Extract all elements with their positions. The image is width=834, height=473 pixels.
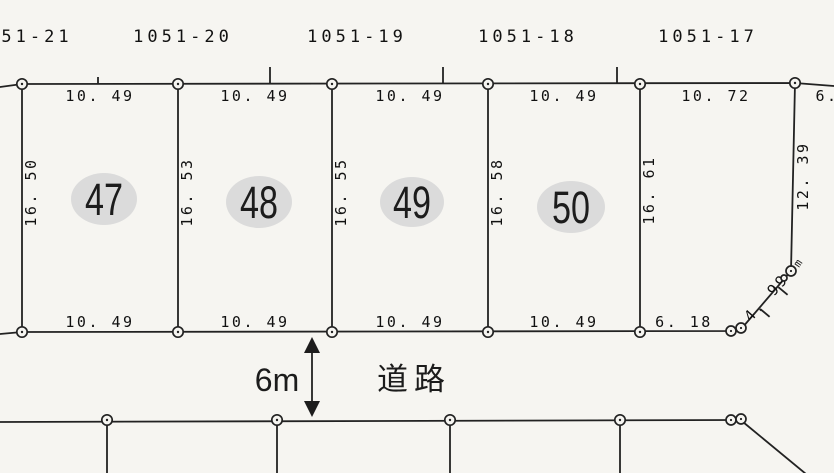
bottom-measurement-5: 6. 18 [655,313,713,331]
survey-point [736,414,746,424]
parcel-label-1051-20: 1051-20 [133,27,233,47]
survey-point [726,326,736,336]
road-south-diagonal [743,422,806,473]
depth-measurement-2: 16. 53 [178,157,196,226]
survey-point [17,79,27,89]
survey-point [781,275,787,281]
depth-measurement-3: 16. 55 [332,157,350,226]
parcel-label-1051-17: 1051-17 [658,27,758,47]
bottom-measurement-2: 10. 49 [220,313,289,331]
survey-point [483,79,493,89]
survey-point [483,327,493,337]
survey-point [615,415,625,425]
top-measurement-4: 10. 49 [529,87,598,105]
survey-point [790,78,800,88]
road-name-label: 道路 [377,362,451,397]
survey-point [272,415,282,425]
road-width-label: 6m [255,362,299,398]
plot-number-50: 50 [552,182,590,233]
plot-number-49: 49 [393,177,431,228]
survey-point [635,327,645,337]
survey-point [17,327,27,337]
parcel-label-1051-21: 51-21 [1,27,72,47]
survey-point [445,415,455,425]
survey-point [726,415,736,425]
survey-point [786,266,796,276]
top-measurement-2: 10. 49 [220,87,289,105]
bottom-measurement-3: 10. 49 [375,313,444,331]
survey-point [327,327,337,337]
top-measurement-3: 10. 49 [375,87,444,105]
road-width-arrow-down-head [304,401,320,417]
survey-point [635,79,645,89]
plot-number-48: 48 [240,177,278,228]
top-measurement-1: 10. 49 [65,87,134,105]
plot-number-47: 47 [85,174,123,225]
depth-measurement-1: 16. 50 [22,157,40,226]
survey-point [173,79,183,89]
parcel-label-1051-19: 1051-19 [307,27,407,47]
top-measurement-5: 10. 72 [681,87,750,105]
cadastral-survey-map: 51-21 1051-20 1051-19 1051-18 1051-17 10… [0,0,834,473]
survey-point [173,327,183,337]
survey-point [102,415,112,425]
depth-measurement-4: 16. 58 [488,157,506,226]
bottom-measurement-4: 10. 49 [529,313,598,331]
right-edge-depth-measurement: 12. 39 [794,141,812,210]
bottom-measurement-1: 10. 49 [65,313,134,331]
road-width-arrow-up-head [304,337,320,353]
depth-measurement-5: 16. 61 [640,155,658,224]
parcel-label-1051-18: 1051-18 [478,27,578,47]
survey-map-page: 51-21 1051-20 1051-19 1051-18 1051-17 10… [0,0,834,473]
survey-point [736,323,746,333]
top-measurement-6-clipped: 6. [815,87,834,105]
survey-point [327,79,337,89]
